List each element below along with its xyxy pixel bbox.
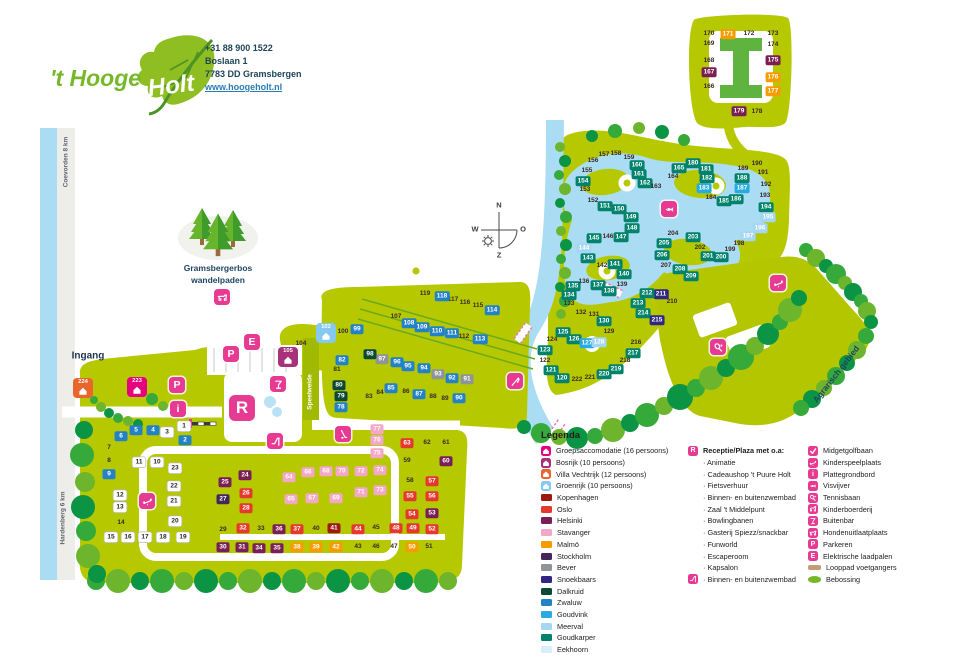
- legend-item: Snoekbaars: [541, 574, 668, 586]
- pool-icon: [688, 574, 698, 584]
- legend-item: · Animatie: [688, 457, 796, 469]
- legend-item: Kopenhagen: [541, 492, 668, 504]
- map-label: Z: [497, 251, 502, 260]
- color-swatch: [541, 611, 552, 618]
- reception-icon: R: [688, 446, 698, 456]
- color-swatch: [541, 541, 552, 548]
- house-icon: [541, 481, 551, 491]
- legend-item: · Gasterij Spiezz/snackbar: [688, 527, 796, 539]
- i-letter-icon: i: [808, 469, 818, 479]
- legend-item: Buitenbar: [808, 515, 897, 527]
- legend-item: Groepsaccomodatie (16 persoons): [541, 445, 668, 457]
- dog-icon: [808, 528, 818, 538]
- legend-item: Looppad voetgangers: [808, 562, 897, 574]
- color-swatch: [541, 623, 552, 630]
- color-swatch: [541, 646, 552, 653]
- map-label: N: [496, 201, 501, 210]
- legend-item: Malmö: [541, 539, 668, 551]
- color-swatch: [541, 517, 552, 524]
- legend-item: Bosrijk (10 persoons): [541, 457, 668, 469]
- color-swatch: [541, 506, 552, 513]
- legend-item: Stockholm: [541, 550, 668, 562]
- legend-item: · Binnen- en buitenzwembad: [688, 492, 796, 504]
- color-swatch: [541, 494, 552, 501]
- park-map-page: Holt 't Hooge +31 88 900 1522 Boslaan 1 …: [0, 0, 966, 662]
- legend-item: Kinderspeelplaats: [808, 457, 897, 469]
- legend-item: Stavanger: [541, 527, 668, 539]
- map-label: Speelweide: [307, 374, 314, 409]
- tree-swatch: [808, 576, 821, 583]
- cocktail-icon: [808, 516, 818, 526]
- legend-item: Zwaluw: [541, 597, 668, 609]
- seesaw-icon: [808, 458, 818, 468]
- map-label: Coevorden 8 km: [63, 137, 70, 188]
- legend-title: Legenda: [541, 430, 580, 441]
- map-label: O: [520, 225, 526, 234]
- map-label: W: [471, 225, 478, 234]
- legend-item: Goudkarper: [541, 632, 668, 644]
- legend-item: · Zaal 't Middelpunt: [688, 503, 796, 515]
- footpath-swatch: [808, 565, 821, 570]
- legend-item: Villa Vechtrijk (12 persoons): [541, 468, 668, 480]
- goat-icon: [808, 504, 818, 514]
- legend-item: · Escaperoom: [688, 550, 796, 562]
- legend-item: · Fietsverhuur: [688, 480, 796, 492]
- legend-item: Visvijver: [808, 480, 897, 492]
- legend-item: Tennisbaan: [808, 492, 897, 504]
- color-swatch: [541, 599, 552, 606]
- legend-item: Meerval: [541, 620, 668, 632]
- legend-item: · Kapsalon: [688, 562, 796, 574]
- map-label: wandelpaden: [191, 275, 245, 285]
- legend-item: Groenrijk (10 persoons): [541, 480, 668, 492]
- legend-item: · Funworld: [688, 539, 796, 551]
- legend-item: Bebossing: [808, 574, 897, 586]
- tennis-icon: [808, 493, 818, 503]
- legend-item: Helsinki: [541, 515, 668, 527]
- legend-item: Kinderboerderij: [808, 503, 897, 515]
- legend-item: Oslo: [541, 503, 668, 515]
- map-label: Ingang: [72, 351, 105, 362]
- color-swatch: [541, 564, 552, 571]
- legend-item: Dalkruid: [541, 585, 668, 597]
- legend-item: · Bowlingbanen: [688, 515, 796, 527]
- check-icon: [808, 446, 818, 456]
- fish-icon: [808, 481, 818, 491]
- E-letter-icon: E: [808, 551, 818, 561]
- color-swatch: [541, 588, 552, 595]
- house-icon: [541, 469, 551, 479]
- map-label: Hardenberg 6 km: [60, 491, 67, 544]
- house-icon: [541, 458, 551, 468]
- color-swatch: [541, 634, 552, 641]
- map-label: Gramsbergerbos: [184, 263, 253, 273]
- legend-item: · Binnen- en buitenzwembad: [688, 574, 796, 586]
- legend-item: RReceptie/Plaza met o.a:: [688, 445, 796, 457]
- legend-item: iPlattegrondbord: [808, 468, 897, 480]
- map-label: Agrarisch gebied: [811, 344, 862, 405]
- legend-item: Midgetgolfbaan: [808, 445, 897, 457]
- legend-item: Hondenuitlaatplaats: [808, 527, 897, 539]
- legend-item: Goudvink: [541, 609, 668, 621]
- legend-item: Bever: [541, 562, 668, 574]
- house-icon: [541, 446, 551, 456]
- color-swatch: [541, 529, 552, 536]
- P-letter-icon: P: [808, 539, 818, 549]
- legend-item: · Cadeaushop 't Puure Holt: [688, 468, 796, 480]
- legend-item: EElektrische laadpalen: [808, 550, 897, 562]
- color-swatch: [541, 553, 552, 560]
- legend-item: Eekhoorn: [541, 644, 668, 656]
- color-swatch: [541, 576, 552, 583]
- legend-item: PParkeren: [808, 539, 897, 551]
